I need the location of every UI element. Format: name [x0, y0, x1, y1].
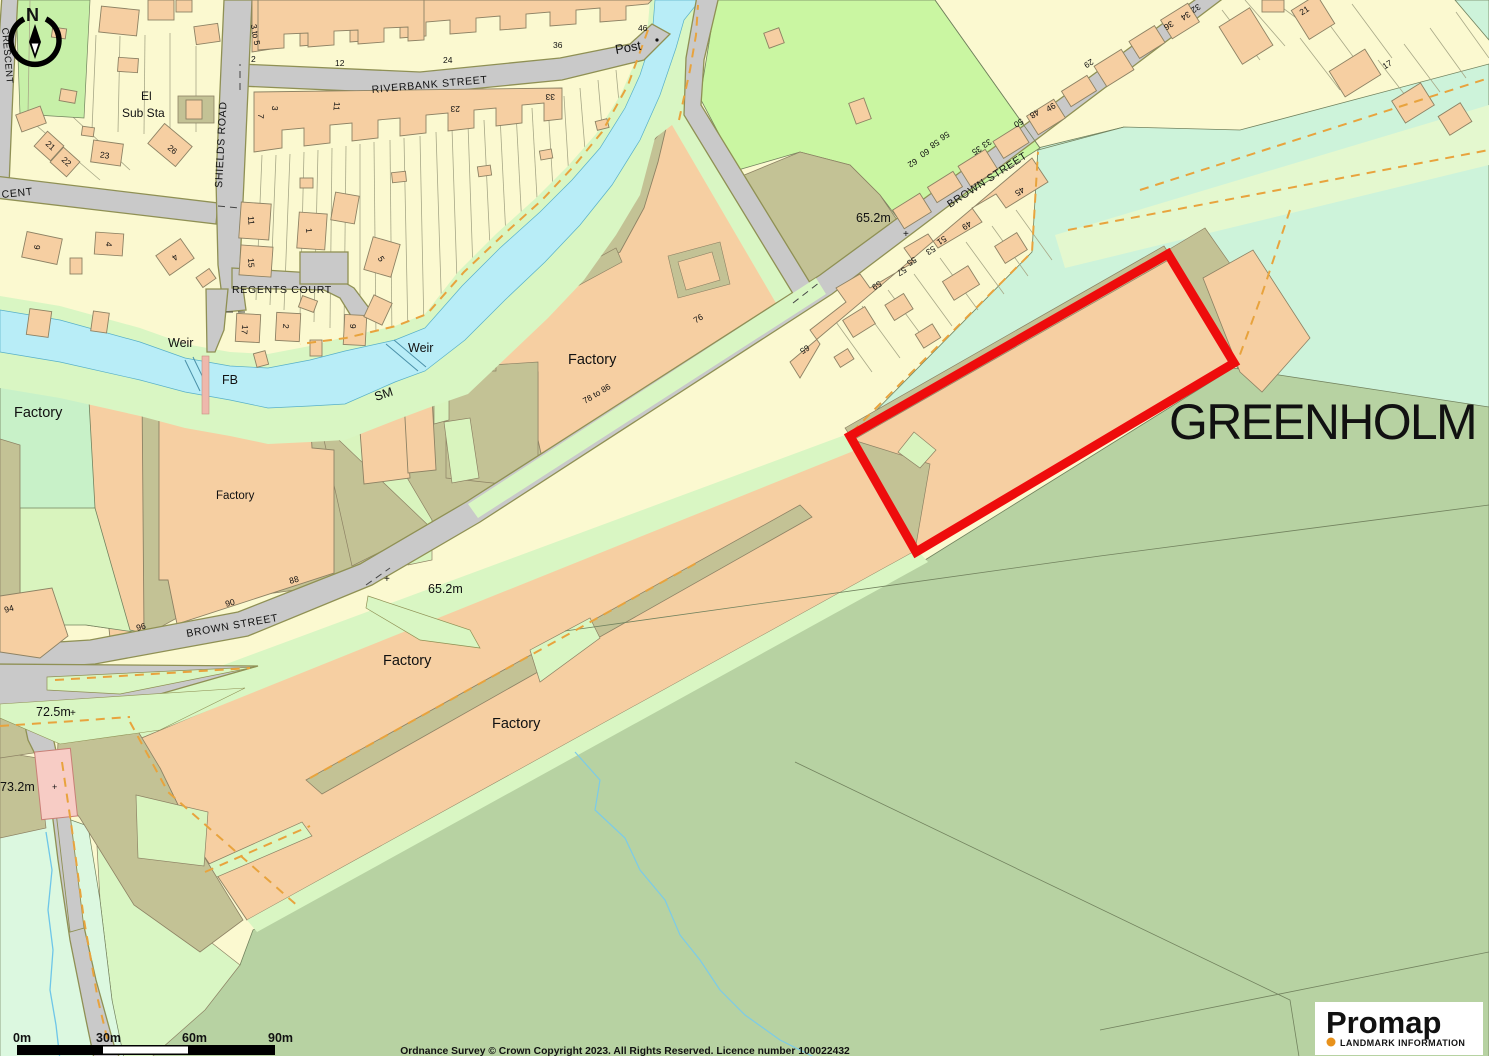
svg-text:65.2m: 65.2m	[856, 211, 891, 225]
svg-text:+: +	[70, 708, 76, 719]
svg-text:23: 23	[99, 149, 110, 160]
svg-text:46: 46	[638, 23, 648, 33]
svg-text:Promap: Promap	[1326, 1005, 1441, 1040]
svg-text:+: +	[903, 229, 909, 240]
svg-text:+: +	[52, 782, 57, 792]
svg-text:Factory: Factory	[14, 405, 63, 421]
svg-text:0m: 0m	[13, 1031, 31, 1045]
svg-text:17: 17	[239, 324, 250, 335]
svg-text:33: 33	[545, 92, 555, 102]
svg-text:Factory: Factory	[568, 352, 617, 368]
svg-text:12: 12	[335, 58, 345, 68]
svg-text:30m: 30m	[96, 1031, 121, 1045]
svg-text:2: 2	[251, 54, 256, 64]
svg-text:N: N	[26, 5, 39, 25]
svg-text:Factory: Factory	[492, 716, 541, 732]
svg-text:11: 11	[331, 101, 342, 111]
svg-text:72.5m: 72.5m	[36, 705, 71, 719]
svg-text:Factory: Factory	[383, 653, 432, 669]
svg-text:73.2m: 73.2m	[0, 780, 35, 794]
svg-text:90m: 90m	[268, 1031, 293, 1045]
svg-text:LANDMARK INFORMATION: LANDMARK INFORMATION	[1340, 1038, 1465, 1048]
svg-text:Ordnance Survey © Crown Copyri: Ordnance Survey © Crown Copyright 2023. …	[400, 1046, 850, 1057]
svg-text:11: 11	[246, 216, 257, 226]
svg-text:24: 24	[443, 55, 453, 65]
svg-text:Weir: Weir	[408, 341, 433, 355]
svg-text:60m: 60m	[182, 1031, 207, 1045]
svg-text:GREENHOLM: GREENHOLM	[1169, 394, 1476, 450]
svg-text:36: 36	[553, 40, 563, 50]
svg-text:Weir: Weir	[168, 336, 193, 350]
svg-text:23: 23	[450, 104, 460, 114]
svg-text:65.2m: 65.2m	[428, 582, 463, 596]
svg-text:REGENTS COURT: REGENTS COURT	[232, 284, 332, 296]
svg-text:Factory: Factory	[216, 490, 255, 502]
svg-text:15: 15	[246, 258, 257, 269]
svg-text:FB: FB	[222, 373, 238, 387]
svg-text:Sub Sta: Sub Sta	[122, 106, 165, 120]
svg-text:+: +	[384, 574, 390, 585]
svg-text:El: El	[141, 89, 152, 103]
